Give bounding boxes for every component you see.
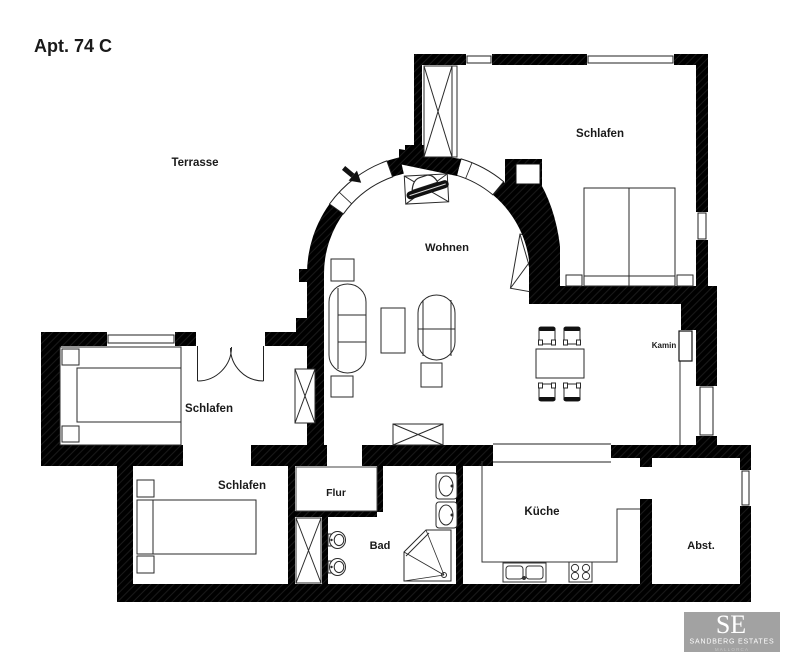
svg-text:Bad: Bad [370, 540, 391, 552]
svg-text:Schlafen: Schlafen [218, 480, 266, 492]
svg-text:SANDBERG ESTATES: SANDBERG ESTATES [690, 639, 775, 646]
svg-text:Wohnen: Wohnen [425, 242, 469, 254]
svg-text:Küche: Küche [524, 506, 559, 518]
svg-text:MALLORCA: MALLORCA [715, 647, 749, 652]
svg-text:Flur: Flur [326, 487, 346, 499]
svg-text:Schlafen: Schlafen [185, 403, 233, 415]
svg-text:SE: SE [716, 610, 746, 639]
svg-text:Schlafen: Schlafen [576, 128, 624, 140]
svg-text:Kamin: Kamin [652, 341, 677, 350]
svg-text:Abst.: Abst. [687, 540, 715, 552]
svg-text:Apt. 74 C: Apt. 74 C [34, 36, 112, 56]
svg-text:Terrasse: Terrasse [171, 157, 218, 169]
